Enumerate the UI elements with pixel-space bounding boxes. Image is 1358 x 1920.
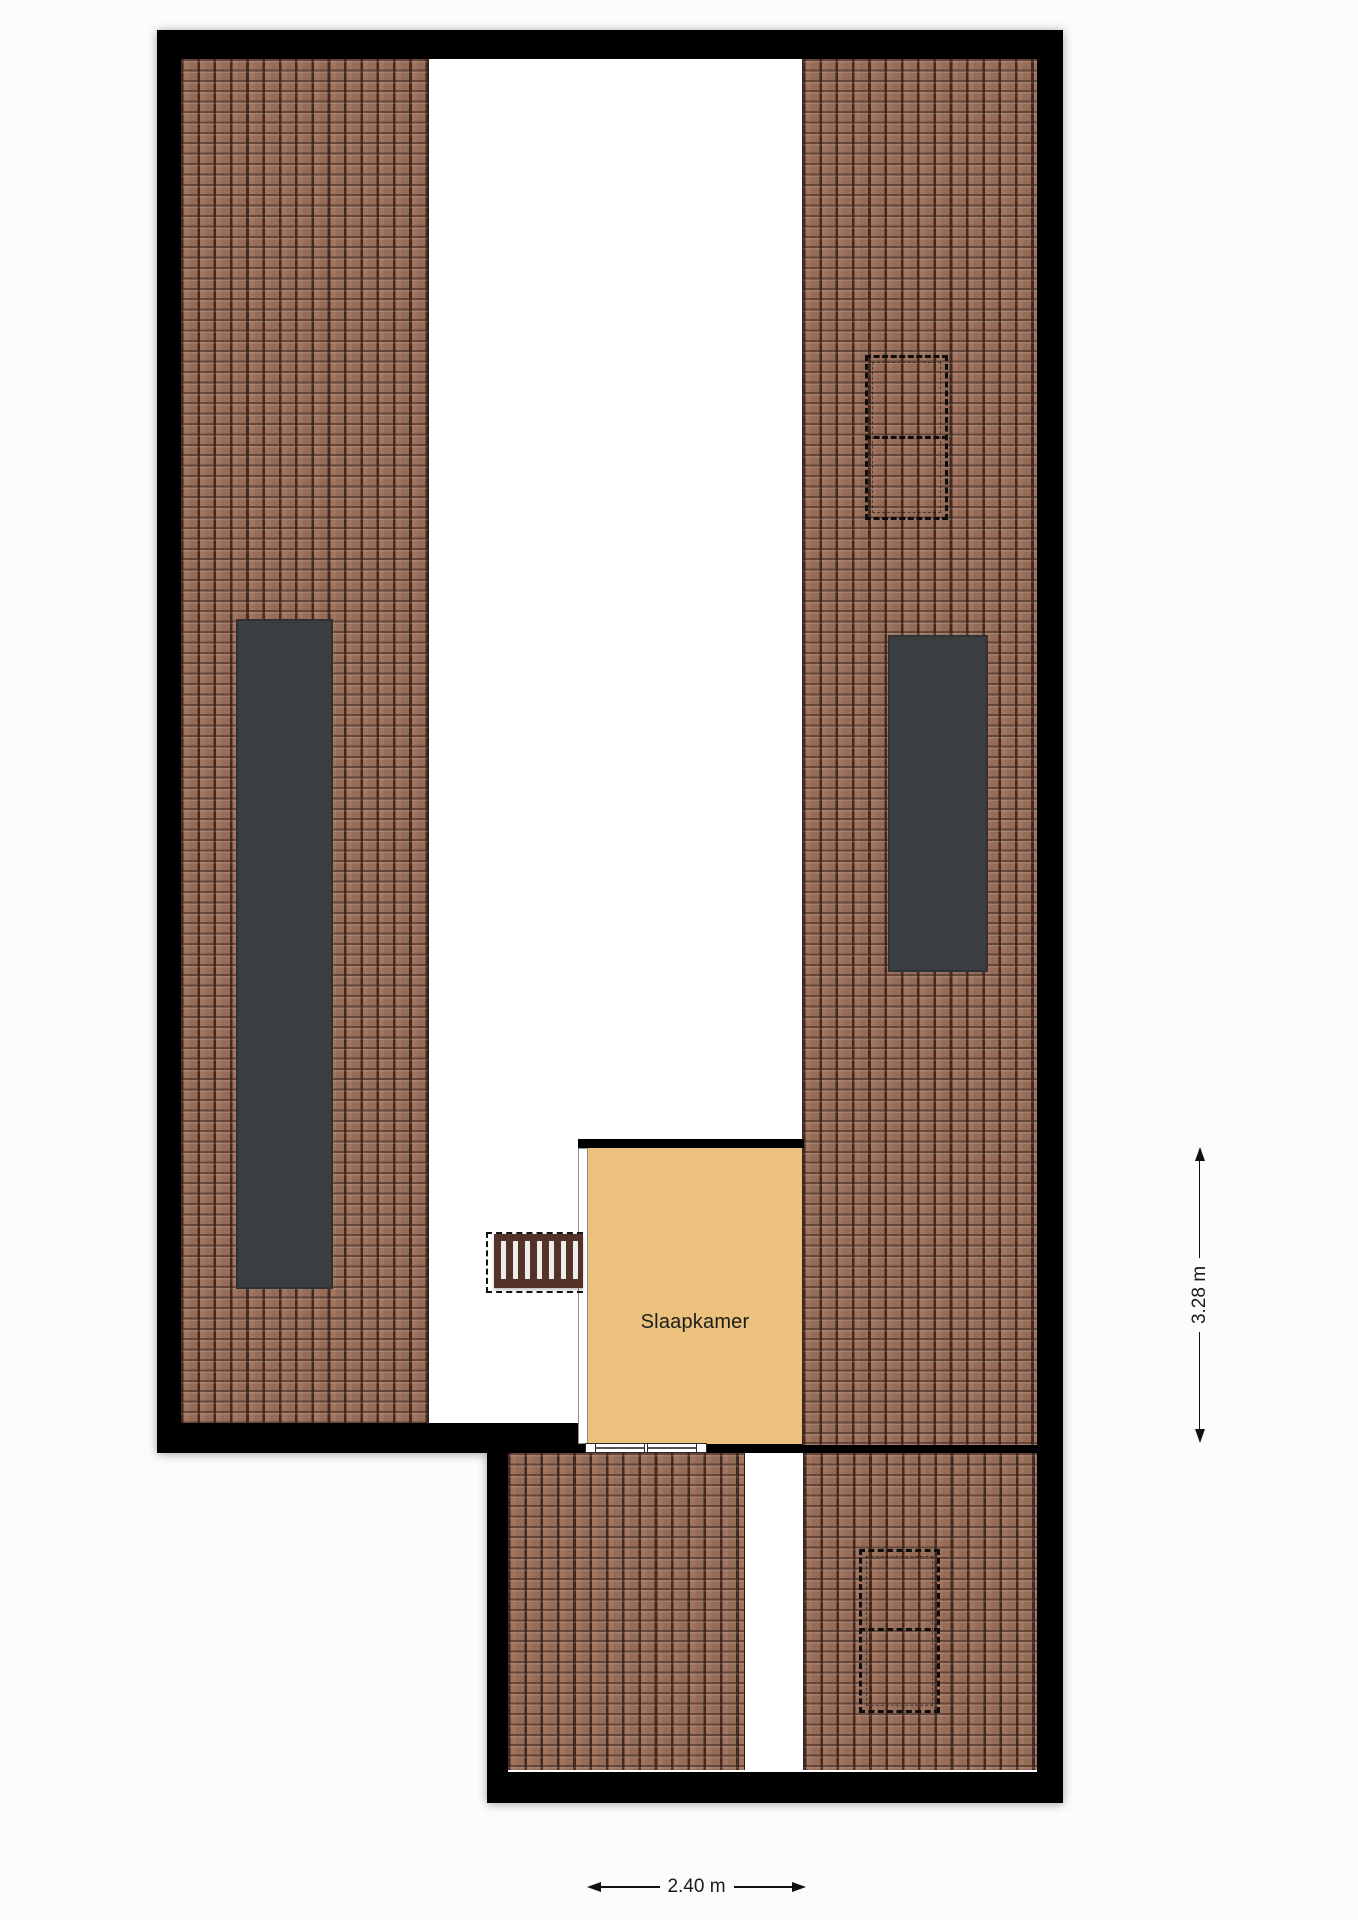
hatch-divider-line [859, 1628, 940, 1631]
arrow-right-icon [792, 1882, 806, 1892]
dimension-horizontal-label: 2.40 m [659, 1873, 733, 1901]
bedroom-room: Slaapkamer [588, 1148, 802, 1444]
dimension-vertical: 3.28 m [1189, 1147, 1210, 1443]
arrow-left-icon [587, 1882, 601, 1892]
window-sash [648, 1444, 696, 1452]
window-end-cap [586, 1444, 596, 1452]
bedroom-window [585, 1443, 707, 1453]
extension-block [487, 1423, 1063, 1803]
floorplan-page: Slaapkamer 3.28 m 2.40 m [0, 0, 1358, 1920]
bedroom-label: Slaapkamer [588, 1311, 802, 1334]
bedroom-top-wall [578, 1139, 804, 1148]
building-shadow-wrapper: Slaapkamer [0, 0, 1358, 1920]
skylight-left [236, 619, 333, 1289]
bedroom-left-partition-wall [578, 1148, 588, 1444]
extension-roof-tiles-left [508, 1453, 745, 1770]
staircase [486, 1232, 583, 1293]
skylight-right [888, 635, 988, 972]
dimension-horizontal: 2.40 m [587, 1879, 806, 1895]
window-sash [596, 1444, 644, 1452]
roof-hatch-dashed-outline [865, 355, 948, 520]
main-attic-block: Slaapkamer [157, 30, 1063, 1453]
extension-roof-hatch-dashed-outline [859, 1549, 940, 1713]
arrow-down-icon [1195, 1429, 1205, 1443]
hatch-divider-line [865, 436, 948, 439]
window-end-cap [696, 1444, 706, 1452]
dimension-vertical-label: 3.28 m [1186, 1258, 1214, 1332]
staircase-treads [494, 1234, 583, 1288]
arrow-up-icon [1195, 1147, 1205, 1161]
